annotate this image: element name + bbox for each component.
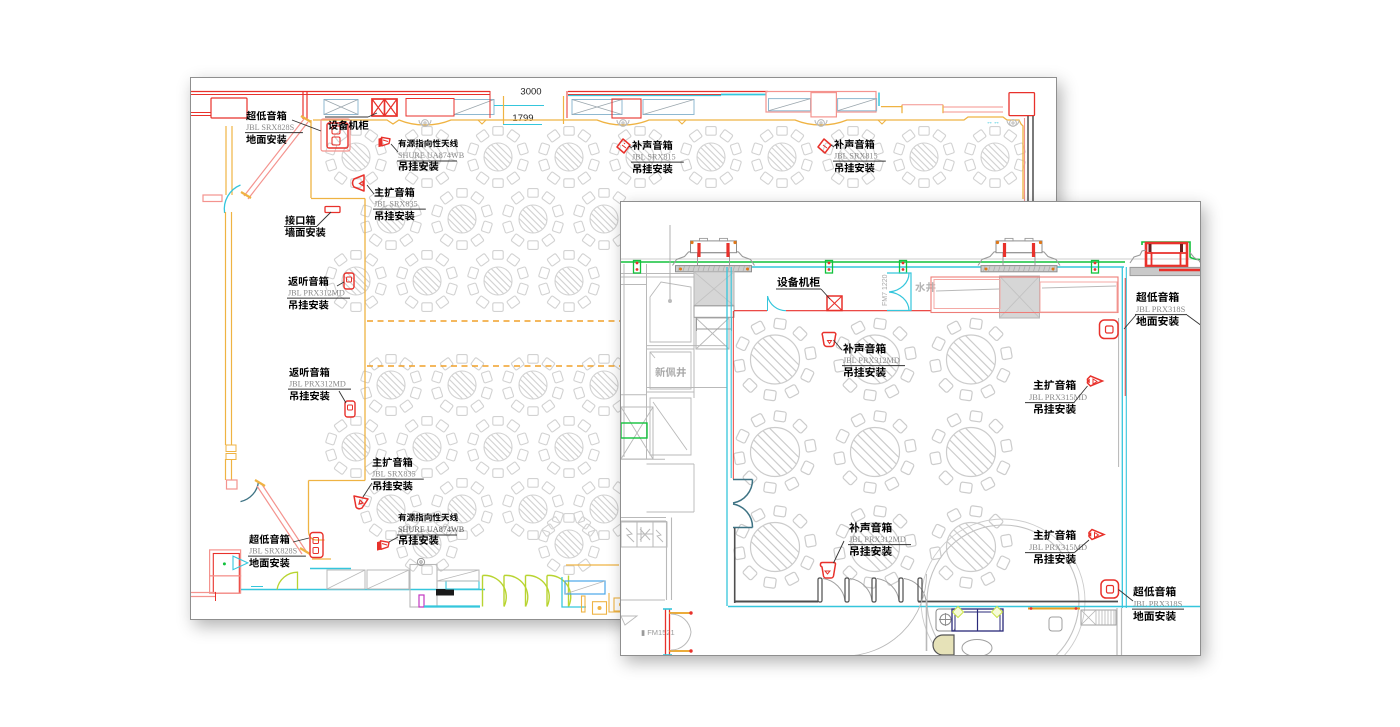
- svg-text:JBL PRX312MD: JBL PRX312MD: [289, 380, 346, 389]
- svg-text:SHURE UA874WB: SHURE UA874WB: [398, 151, 465, 160]
- svg-text:JBL PRX312MD: JBL PRX312MD: [288, 289, 345, 298]
- svg-text:JBL SRX835: JBL SRX835: [372, 470, 416, 479]
- svg-text:JBL PRX312MD: JBL PRX312MD: [849, 535, 906, 544]
- svg-text:JBL PRX318S: JBL PRX318S: [1133, 600, 1183, 609]
- svg-text:3000: 3000: [520, 87, 541, 98]
- svg-text:JBL SRX828S: JBL SRX828S: [249, 547, 298, 556]
- svg-text:JBL PRX312MD: JBL PRX312MD: [843, 356, 900, 365]
- svg-text:JBL SRX828S: JBL SRX828S: [246, 123, 295, 132]
- svg-text:SHURE UA874WB: SHURE UA874WB: [398, 525, 465, 534]
- svg-text:JBL SRX835: JBL SRX835: [374, 200, 418, 209]
- svg-text:↔↔: ↔↔: [986, 119, 1000, 126]
- svg-text:JBL PRX318S: JBL PRX318S: [1136, 305, 1186, 314]
- svg-text:1799: 1799: [512, 113, 533, 124]
- svg-text:FM7 1220: FM7 1220: [882, 274, 889, 306]
- svg-text:JBL PRX315MD: JBL PRX315MD: [1029, 543, 1087, 552]
- svg-text:JBL SRX815: JBL SRX815: [834, 152, 878, 161]
- svg-text:JBL SRX815: JBL SRX815: [632, 153, 676, 162]
